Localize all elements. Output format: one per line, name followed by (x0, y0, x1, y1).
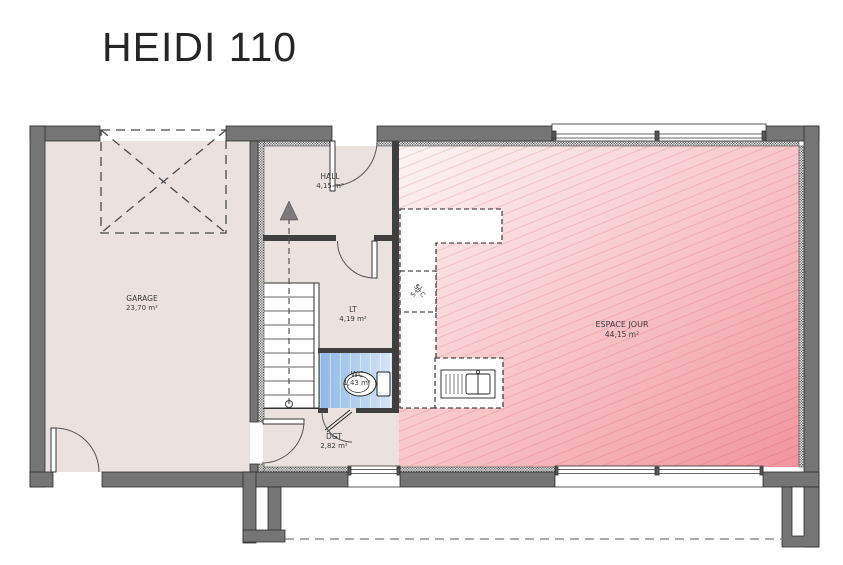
lt-area: 4,19 m² (339, 315, 367, 323)
hall-area: 4,15 m² (316, 182, 344, 190)
window-top (552, 124, 766, 141)
dgt-label: DGT (326, 432, 342, 441)
living-partition-wall (392, 141, 399, 410)
living-room-area: 44,15 m² (605, 330, 639, 339)
window-bottom-large (555, 466, 763, 487)
floor-plan-page: HEIDI 110 (0, 0, 843, 565)
living-room-label: ESPACE JOUR (595, 320, 648, 329)
garage-partition-wall (250, 141, 258, 422)
kitchen-sink-icon (441, 370, 495, 398)
wc-label: WC (351, 370, 364, 379)
garage-area: 23,70 m² (126, 304, 158, 312)
staircase (263, 283, 319, 408)
wc-wall-top (318, 348, 392, 353)
window-bottom-small (348, 466, 400, 487)
hall-label: HALL (320, 172, 340, 181)
dgt-area: 2,82 m² (320, 442, 348, 450)
floor-plan-drawing: GARAGE 23,70 m² HALL 4,15 m² LT 4,19 m² … (0, 0, 843, 565)
stair-side-wall (314, 283, 319, 408)
wall-left (30, 126, 45, 487)
wc-area: 1,43 m² (343, 379, 371, 387)
lt-label: LT (349, 305, 357, 314)
garage-label: GARAGE (126, 294, 158, 303)
